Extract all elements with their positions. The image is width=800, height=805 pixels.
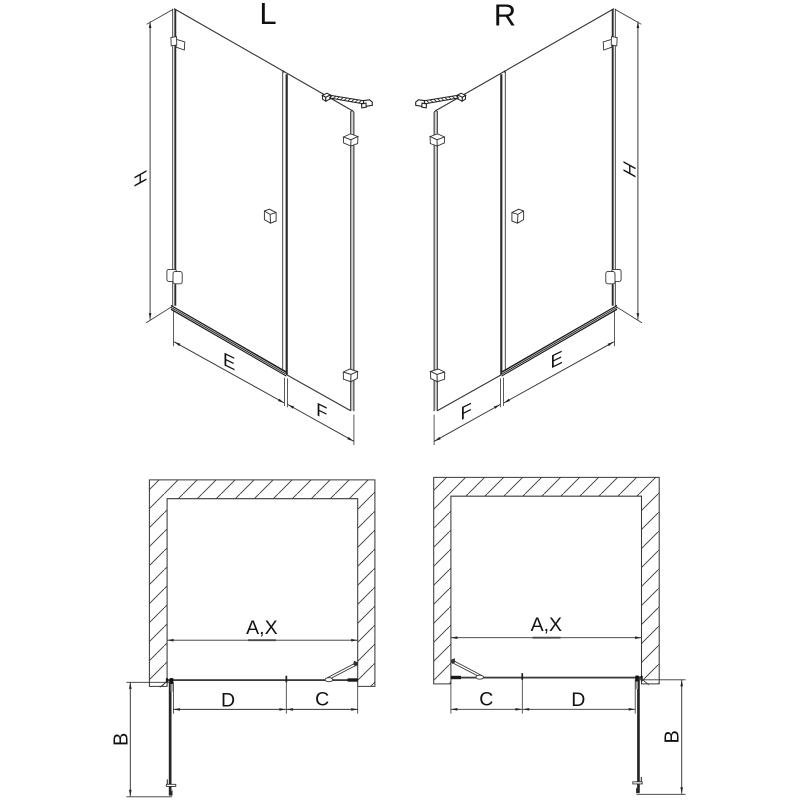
svg-text:A,X: A,X	[531, 614, 562, 636]
svg-text:C: C	[315, 688, 329, 710]
svg-text:C: C	[479, 688, 493, 710]
svg-text:D: D	[221, 690, 235, 712]
svg-text:B: B	[111, 733, 133, 746]
svg-text:D: D	[571, 689, 585, 711]
svg-text:R: R	[494, 0, 516, 32]
svg-text:L: L	[259, 0, 276, 31]
svg-text:B: B	[662, 730, 684, 743]
svg-text:A,X: A,X	[246, 617, 277, 639]
